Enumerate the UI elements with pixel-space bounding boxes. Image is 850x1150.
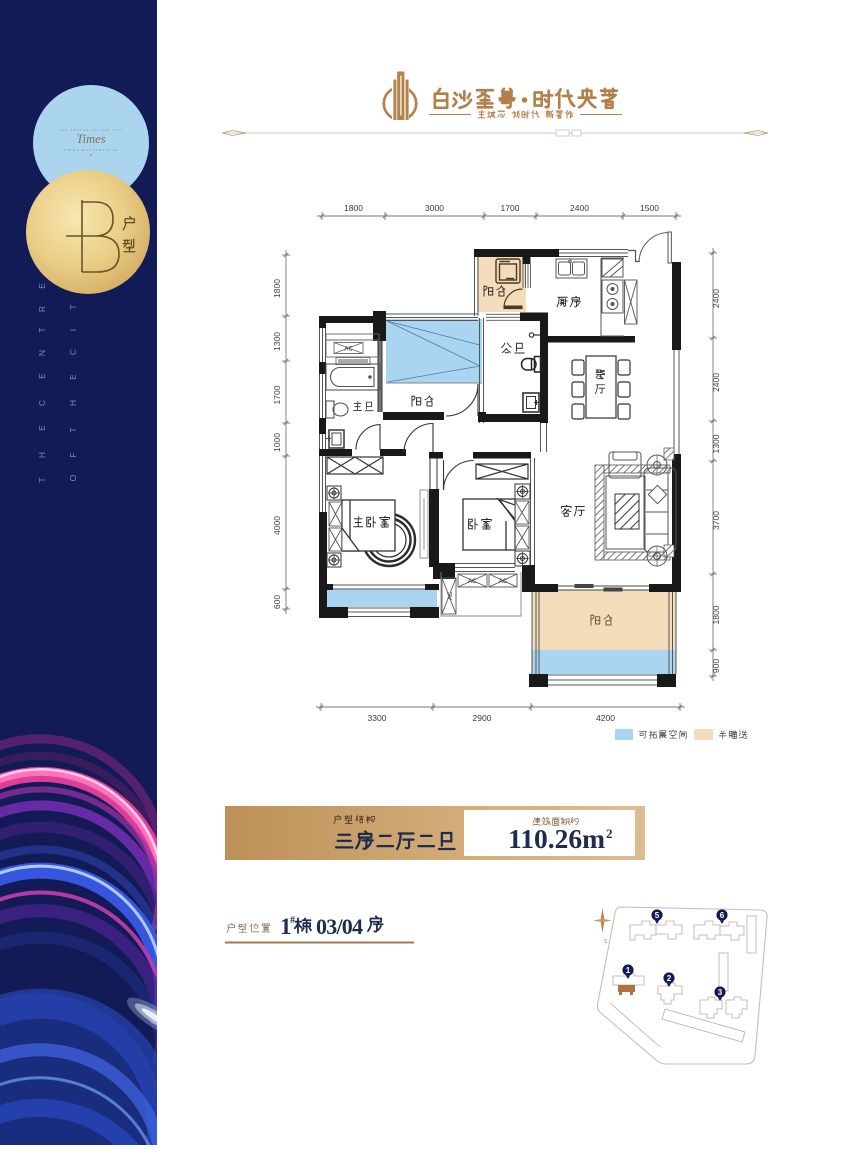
svg-text:4200: 4200 bbox=[596, 713, 615, 723]
svg-text:110.26m: 110.26m bbox=[508, 823, 605, 854]
svg-text:T: T bbox=[68, 427, 78, 432]
svg-text:2900: 2900 bbox=[473, 713, 492, 723]
svg-text:1300: 1300 bbox=[711, 434, 721, 453]
svg-text:1700: 1700 bbox=[272, 385, 282, 404]
svg-text:3: 3 bbox=[718, 988, 723, 997]
svg-text:T: T bbox=[68, 304, 78, 309]
svg-text:03/04: 03/04 bbox=[316, 914, 363, 939]
svg-text:Times: Times bbox=[76, 132, 105, 146]
svg-text:1800: 1800 bbox=[711, 605, 721, 624]
svg-text:TIMES MASTERPIECE: TIMES MASTERPIECE bbox=[63, 148, 118, 152]
svg-text:2400: 2400 bbox=[711, 289, 721, 308]
svg-text:1800: 1800 bbox=[344, 203, 363, 213]
svg-text:R: R bbox=[37, 306, 47, 312]
svg-text:#: # bbox=[290, 915, 295, 926]
svg-text:1500: 1500 bbox=[640, 203, 659, 213]
svg-text:2400: 2400 bbox=[570, 203, 589, 213]
svg-text:1: 1 bbox=[626, 966, 631, 975]
svg-text:600: 600 bbox=[272, 595, 282, 609]
svg-text:1700: 1700 bbox=[501, 203, 520, 213]
svg-text:AC: AC bbox=[468, 579, 477, 585]
svg-text:AC: AC bbox=[499, 579, 508, 585]
svg-text:E: E bbox=[37, 425, 47, 431]
svg-text:AC: AC bbox=[448, 591, 454, 600]
svg-text:E: E bbox=[37, 283, 47, 289]
svg-text:1000: 1000 bbox=[272, 433, 282, 452]
svg-text:THE CENTRE OF THE CITY: THE CENTRE OF THE CITY bbox=[58, 128, 123, 132]
svg-text:C: C bbox=[37, 400, 47, 406]
svg-text:E: E bbox=[68, 374, 78, 380]
svg-text:F: F bbox=[68, 452, 78, 457]
svg-text:AC: AC bbox=[344, 347, 353, 353]
svg-text:E: E bbox=[37, 373, 47, 379]
svg-text:S: S bbox=[604, 939, 608, 945]
svg-text:3000: 3000 bbox=[425, 203, 444, 213]
svg-text:1800: 1800 bbox=[272, 279, 282, 298]
svg-text:4000: 4000 bbox=[272, 516, 282, 535]
svg-text:C: C bbox=[68, 349, 78, 355]
svg-text:H: H bbox=[68, 400, 78, 406]
svg-text:T: T bbox=[37, 477, 47, 482]
svg-text:I: I bbox=[68, 329, 78, 331]
svg-text:2: 2 bbox=[606, 826, 613, 841]
svg-text:5: 5 bbox=[655, 911, 660, 920]
svg-text:H: H bbox=[37, 452, 47, 458]
svg-text:2: 2 bbox=[667, 974, 672, 983]
svg-text:900: 900 bbox=[711, 659, 721, 673]
svg-text:2400: 2400 bbox=[711, 373, 721, 392]
svg-text:3300: 3300 bbox=[368, 713, 387, 723]
svg-text:T: T bbox=[37, 327, 47, 332]
svg-text:1300: 1300 bbox=[272, 332, 282, 351]
svg-text:3700: 3700 bbox=[711, 511, 721, 530]
svg-text:6: 6 bbox=[720, 911, 725, 920]
svg-text:O: O bbox=[68, 474, 78, 481]
svg-text:N: N bbox=[37, 350, 47, 356]
